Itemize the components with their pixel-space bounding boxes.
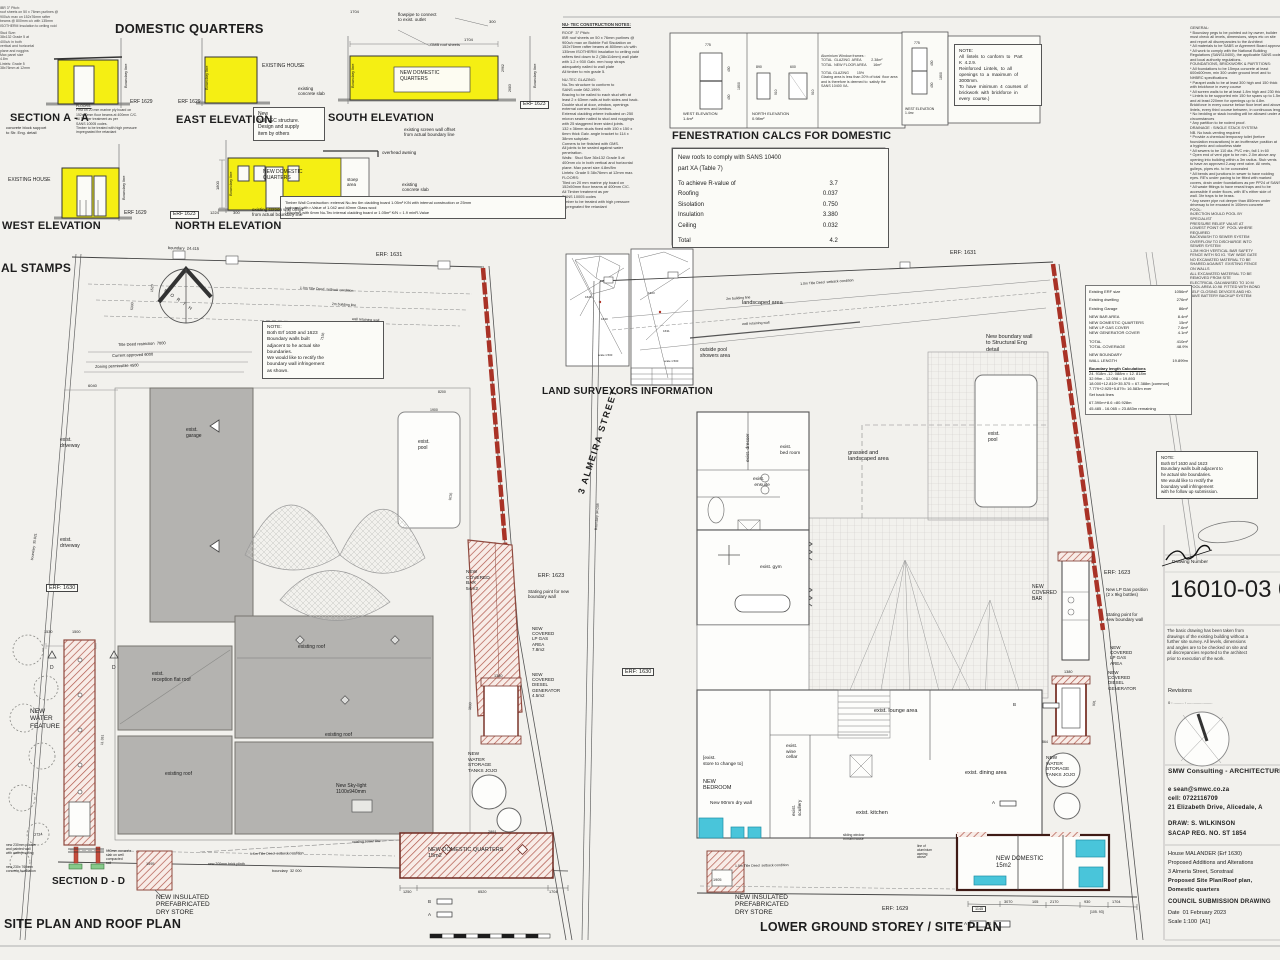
table-row: To achieve R-value of3.7 <box>678 179 838 190</box>
note-line: impregnated fire retardant <box>76 130 168 134</box>
boundary-note-left: NOTE:Both Erf 1630 and 1623Boundary wall… <box>262 321 384 379</box>
note-line: as shown. <box>267 369 379 375</box>
note-line: SANS 10400 XA. <box>821 84 903 88</box>
note-line: 38x76mm at 12mm <box>0 66 56 70</box>
note-line: To have minimum 4 courses of <box>959 84 1037 90</box>
lintel-note: NOTE:All lintels to conform to PartK 4.2… <box>954 44 1042 106</box>
note-line: eyes. RE's under paving to be fitted wit… <box>1190 176 1280 181</box>
table-row: Sisolation0.750 <box>678 200 838 211</box>
nutec-structure-note: NewNU-TEC structure.Design and supplyite… <box>253 107 325 141</box>
rvalue-table: New roofs to comply with SANS 10400part … <box>672 148 889 248</box>
table-row: Insulation3.380 <box>678 210 838 221</box>
timber-wall-note: Timber Wall Construction: external Nu-te… <box>280 196 566 219</box>
table-row: Ceiling0.032 <box>678 221 838 232</box>
note-line: must check all levels, dimensions, steps… <box>1190 35 1280 40</box>
table-row: WALL LENGTH19.899m <box>1089 358 1188 363</box>
note-line: 45.485 - 16.065 = 23.883m remaining <box>1089 406 1188 411</box>
note-line: [16kg/m³] with 6mm Nu-Tec internal cladd… <box>285 210 561 215</box>
floors-note: FLOORS:First on 20 mm marine ply board o… <box>76 104 168 135</box>
surveyors-group <box>566 249 693 385</box>
note-line: beams @ 800mm c/c with 135mm <box>0 19 56 23</box>
nutec-construction-notes: NU- TEC CONSTRUCTION NOTES:ROOF 3° Pitch… <box>562 22 668 210</box>
table-row: Roofing0.037 <box>678 189 838 200</box>
general-notes: GENERAL:* Boundary pegs to be pointed ou… <box>1190 26 1280 299</box>
note-line: with he follow up submission. <box>1161 489 1253 495</box>
glazing-summary: Aluminium Window frames :TOTAL GLAZING A… <box>821 54 903 89</box>
note-line: prior to execution of the work. <box>1167 656 1279 662</box>
note-line: every course.) <box>959 96 1037 102</box>
note-line: ISOTHERM Insulation to ceiling void <box>0 24 56 28</box>
area-schedule-table: Existing ERF size1056m²Existing dwelling… <box>1085 285 1192 415</box>
note-line: HAVE BATTERY BACKUP SYSTEM <box>1190 294 1280 299</box>
titleblock-graphics <box>1162 518 1280 940</box>
note-line: item by others <box>258 131 320 138</box>
scale-bar <box>430 934 550 938</box>
boundary-note-right: NOTE:Both Erf 1630 and 1623Boundary wall… <box>1156 451 1258 499</box>
farleft-notes: IBR 3° Pitch:roof sheets on 50 x 76mm pu… <box>0 6 56 70</box>
architectural-drawing-sheet: IBR 3° Pitch:roof sheets on 50 x 76mm pu… <box>0 0 1280 960</box>
table-row: part XA (Table 7) <box>678 164 838 175</box>
disclaimer-text: The basic drawing has been taken fromdra… <box>1167 628 1279 661</box>
note-line: Glazing area is less than 20% of total f… <box>821 75 903 79</box>
note-line: impregnated fire retardant <box>562 205 668 210</box>
table-row: New roofs to comply with SANS 10400 <box>678 153 838 164</box>
table-row: Total4.2 <box>678 236 838 247</box>
